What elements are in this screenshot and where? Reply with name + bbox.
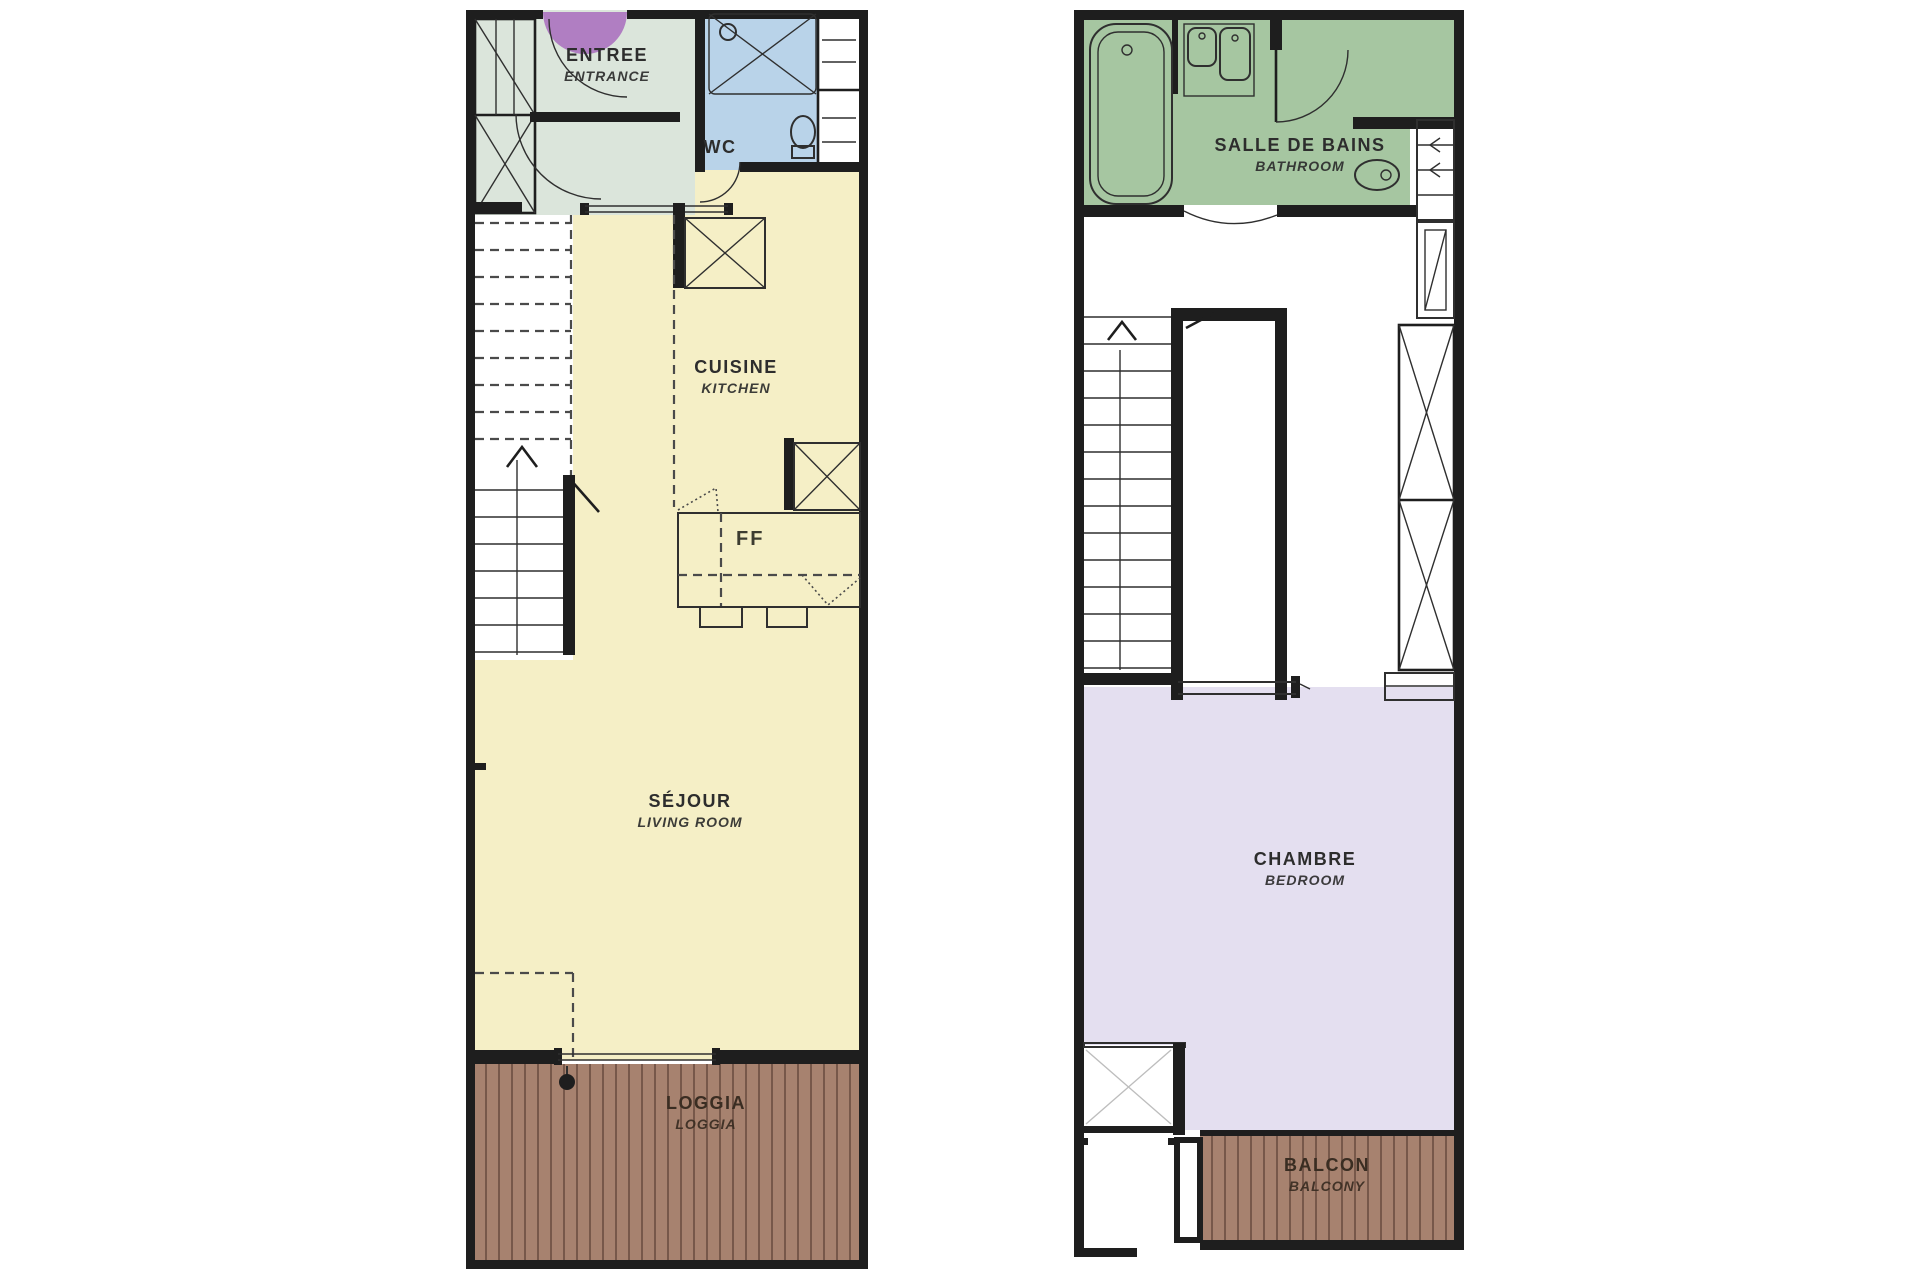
plan-level-1: ENTREE ENTRANCE WC CUISINE KITCHEN FF SÉ…: [466, 10, 868, 1272]
kitchen-appliance-column: [673, 203, 765, 288]
wall-right: [1454, 10, 1464, 1250]
kitchen-counter: [678, 488, 860, 607]
wall-bottom: [466, 1260, 868, 1269]
balcony-bottom-wall: [1200, 1240, 1454, 1250]
wardrobe: [1399, 325, 1454, 670]
staircase-level2: [1084, 317, 1183, 685]
bedroom-label-sub: BEDROOM: [1254, 871, 1357, 889]
bathroom-label-main: SALLE DE BAINS: [1214, 134, 1385, 157]
wc-toilet: [791, 116, 815, 158]
wall-top-left-segment: [466, 10, 543, 19]
entrance-label-main: ENTREE: [564, 44, 650, 67]
wc-side-closet: [818, 10, 860, 170]
kitchen-label-main: CUISINE: [694, 356, 778, 379]
entrance-closet: [475, 19, 535, 213]
entrance-partition-wall: [530, 112, 680, 122]
loggia-label-sub: LOGGIA: [666, 1115, 746, 1133]
plan-level-1-linework: [466, 10, 868, 1272]
bathroom-label: SALLE DE BAINS BATHROOM: [1214, 134, 1385, 176]
living-label-sub: LIVING ROOM: [637, 813, 742, 831]
bedroom-label-main: CHAMBRE: [1254, 848, 1357, 871]
loggia-label: LOGGIA LOGGIA: [666, 1092, 746, 1134]
balcony-label-sub: BALCONY: [1284, 1177, 1370, 1195]
stair-direction-arrow: [1108, 322, 1136, 340]
stairwell-void: [1171, 308, 1310, 700]
lower-window-box: [1074, 1043, 1185, 1145]
bar-stool: [767, 607, 807, 627]
wall-bottom-stub: [1074, 1248, 1137, 1257]
wc-bottom-wall-b: [740, 162, 868, 172]
hall-door-swing-arc: [516, 114, 601, 199]
wc-label-main: WC: [704, 136, 737, 159]
entrance-label-sub: ENTRANCE: [564, 67, 650, 85]
staircase-level1: [475, 215, 599, 655]
double-washbasin: [1184, 24, 1254, 96]
wc-label: WC: [704, 136, 737, 159]
wall-right: [859, 10, 868, 1269]
wall-left: [466, 10, 475, 1269]
bathroom-partition-stub: [1270, 20, 1282, 50]
bathroom-door-swing-arc: [1276, 50, 1348, 122]
bedroom-label: CHAMBRE BEDROOM: [1254, 848, 1357, 890]
low-shelf: [1385, 673, 1454, 700]
balcony-label-main: BALCON: [1284, 1154, 1370, 1177]
ceiling-opening-dashed: [475, 973, 573, 1058]
wc-washbasin: [709, 14, 816, 94]
kitchen-fridge: [784, 438, 860, 510]
landing-bottom-wall: [1353, 117, 1464, 129]
floor-plan-canvas: ENTREE ENTRANCE WC CUISINE KITCHEN FF SÉ…: [0, 0, 1920, 1279]
shelf-cabinet: [1417, 120, 1454, 220]
entrance-label: ENTREE ENTRANCE: [564, 44, 650, 86]
bathroom-entry-arc: [1184, 211, 1277, 224]
balcony-label: BALCON BALCONY: [1284, 1154, 1370, 1196]
bar-stool: [700, 607, 742, 627]
wall-top: [1074, 10, 1464, 20]
window-marker-left: [466, 763, 486, 770]
bathroom-bottom-wall-b: [1277, 205, 1417, 217]
kitchen-label: CUISINE KITCHEN: [694, 356, 778, 398]
bathroom-bottom-wall-a: [1074, 205, 1184, 217]
stair-direction-arrow: [507, 447, 537, 467]
living-label-main: SÉJOUR: [637, 790, 742, 813]
cooktop-mark: FF: [736, 528, 764, 551]
door-pivot-dot: [559, 1074, 575, 1090]
living-label: SÉJOUR LIVING ROOM: [637, 790, 742, 832]
wc-door-swing-arc: [700, 162, 740, 202]
plan-level-2-linework: [1074, 10, 1464, 1272]
kitchen-label-sub: KITCHEN: [694, 379, 778, 397]
balcony-top-sill: [1200, 1130, 1454, 1136]
wall-left: [1074, 10, 1084, 1257]
wc-bottom-wall-a: [695, 162, 705, 172]
window-cabinet: [1417, 222, 1454, 318]
bathroom-label-sub: BATHROOM: [1214, 157, 1385, 175]
loggia-sliding-door: [466, 1048, 868, 1090]
balcony-pillar: [1177, 1140, 1200, 1240]
plan-level-2: SALLE DE BAINS BATHROOM CHAMBRE BEDROOM …: [1074, 10, 1464, 1272]
loggia-label-main: LOGGIA: [666, 1092, 746, 1115]
bathtub: [1090, 24, 1172, 204]
